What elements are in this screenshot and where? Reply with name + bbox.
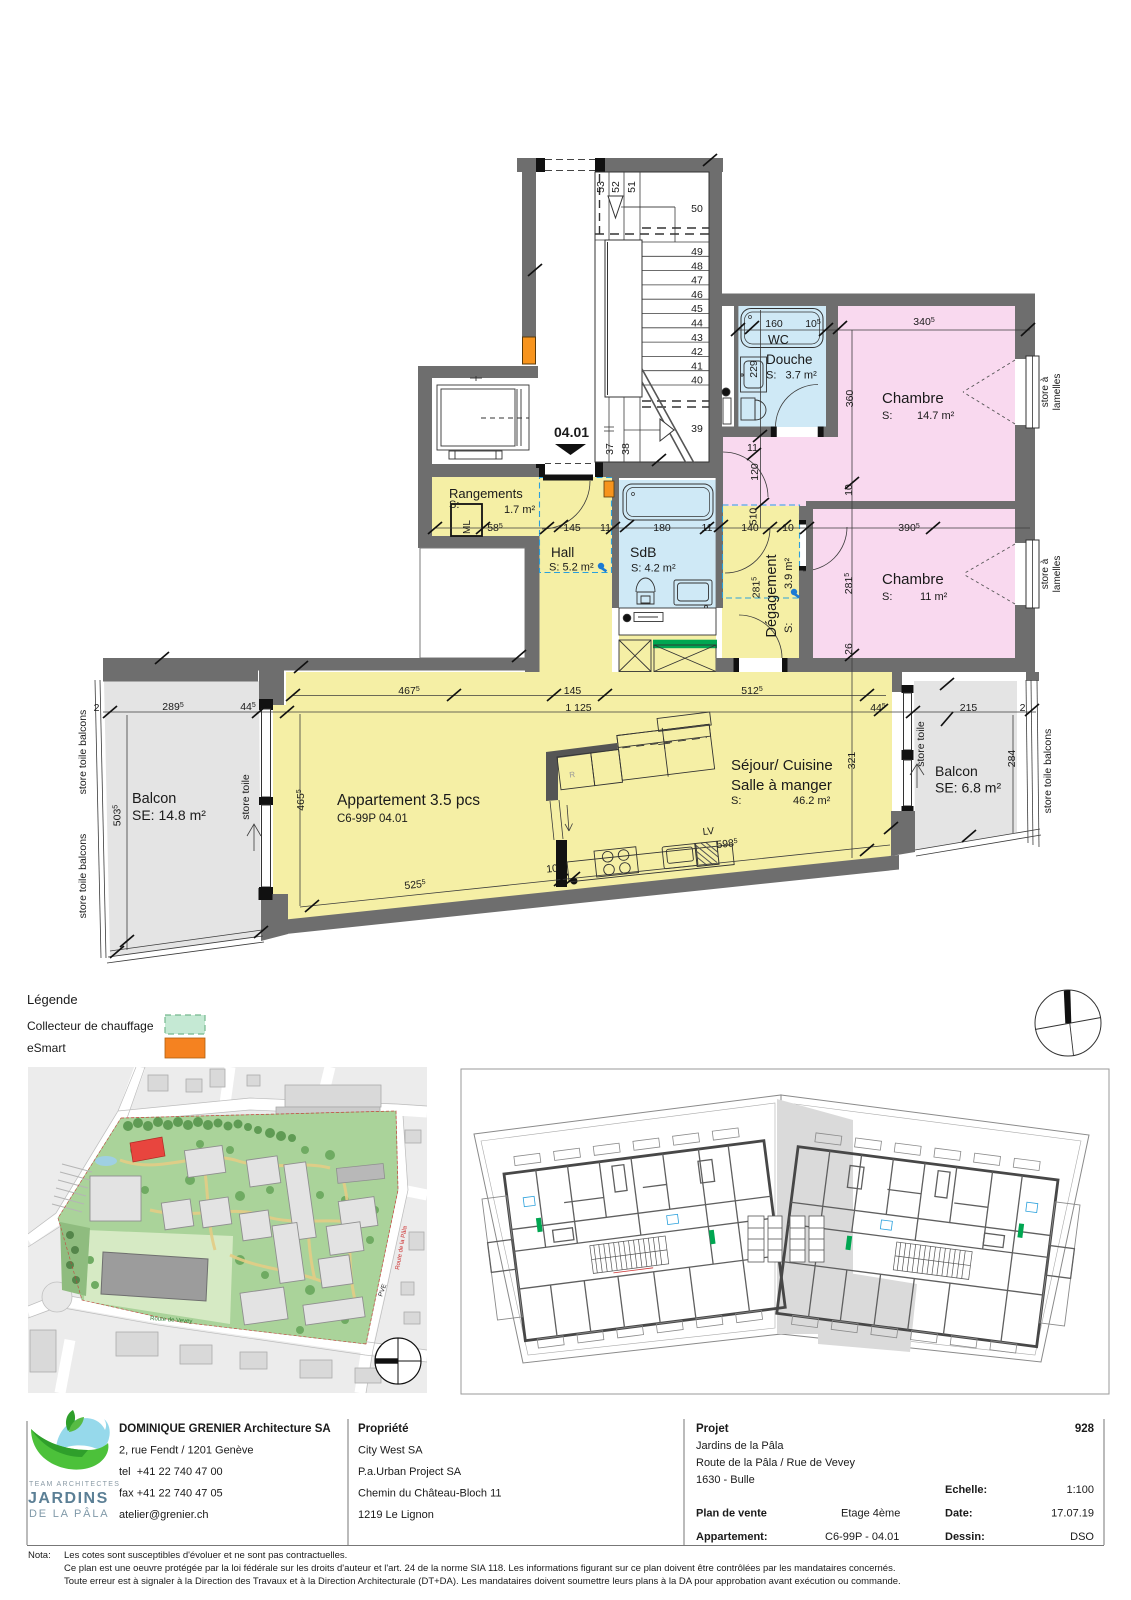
- svg-text:Propriété: Propriété: [358, 1423, 409, 1435]
- svg-text:145: 145: [563, 522, 581, 534]
- svg-text:Appartement:: Appartement:: [696, 1531, 768, 1543]
- svg-text:S:: S:: [882, 591, 892, 603]
- svg-text:S: 3.7 m²: S: 3.7 m²: [766, 370, 817, 382]
- svg-text:39: 39: [691, 423, 703, 435]
- svg-text:1219 Le Lignon: 1219 Le Lignon: [358, 1509, 434, 1521]
- svg-text:2, rue Fendt / 1201 Genève: 2, rue Fendt / 1201 Genève: [119, 1445, 254, 1457]
- svg-text:S: 4.2 m²: S: 4.2 m²: [631, 563, 676, 575]
- svg-text:04.01: 04.01: [554, 424, 589, 440]
- svg-text:44: 44: [691, 318, 703, 330]
- svg-text:SE: 14.8 m²: SE: 14.8 m²: [132, 807, 206, 823]
- svg-text:Séjour/ Cuisine: Séjour/ Cuisine: [731, 757, 833, 774]
- svg-text:40: 40: [691, 375, 703, 387]
- svg-text:City West SA: City West SA: [358, 1445, 423, 1457]
- svg-text:S: 5.2 m²: S: 5.2 m²: [549, 562, 594, 574]
- svg-text:11 m²: 11 m²: [920, 591, 948, 603]
- svg-text:Echelle:: Echelle:: [945, 1484, 987, 1496]
- svg-text:DOMINIQUE GRENIER Architecture: DOMINIQUE GRENIER Architecture SA: [119, 1423, 331, 1435]
- svg-text:Etage 4ème: Etage 4ème: [841, 1508, 900, 1520]
- svg-text:Appartement 3.5 pcs: Appartement 3.5 pcs: [337, 792, 480, 809]
- svg-text:store toile balcons: store toile balcons: [1042, 729, 1054, 814]
- svg-text:SE: 6.8 m²: SE: 6.8 m²: [935, 780, 1001, 796]
- svg-text:Date:: Date:: [945, 1508, 973, 1520]
- svg-text:store toile: store toile: [915, 721, 927, 767]
- svg-text:145: 145: [564, 685, 582, 697]
- svg-text:928: 928: [1075, 1423, 1095, 1435]
- svg-text:1 125: 1 125: [565, 702, 591, 714]
- svg-text:S:: S:: [783, 623, 795, 633]
- svg-text:38: 38: [620, 443, 632, 455]
- svg-text:Ce plan est une oeuvre protégé: Ce plan est une oeuvre protégée par la l…: [64, 1563, 895, 1574]
- svg-text:S:: S:: [449, 499, 459, 511]
- svg-text:Balcon: Balcon: [935, 763, 978, 779]
- svg-text:321: 321: [846, 752, 858, 770]
- svg-text:Dessin:: Dessin:: [945, 1531, 985, 1543]
- svg-text:14.7 m²: 14.7 m²: [917, 410, 955, 422]
- svg-text:store toile balcons: store toile balcons: [77, 710, 89, 795]
- svg-text:lamelles: lamelles: [1052, 374, 1063, 411]
- svg-text:Collecteur de chauffage: Collecteur de chauffage: [27, 1019, 154, 1033]
- svg-text:180: 180: [653, 522, 671, 534]
- svg-text:Chambre: Chambre: [882, 571, 944, 588]
- svg-text:140: 140: [741, 522, 759, 534]
- svg-text:45: 45: [691, 303, 703, 315]
- svg-text:Toute erreur est à signaler à: Toute erreur est à signaler à la Directi…: [64, 1576, 901, 1587]
- svg-text:120: 120: [749, 463, 761, 481]
- svg-text:Dégagement: Dégagement: [764, 554, 780, 637]
- svg-text:Légende: Légende: [27, 992, 78, 1007]
- svg-text:S:: S:: [882, 410, 892, 422]
- svg-text:store à: store à: [1040, 558, 1051, 589]
- svg-text:Nota:: Nota:: [28, 1550, 51, 1561]
- svg-text:41: 41: [691, 360, 703, 372]
- svg-text:TEAM ARCHITECTES: TEAM ARCHITECTES: [29, 1481, 120, 1488]
- svg-text:2: 2: [94, 702, 100, 714]
- svg-text:51: 51: [626, 181, 638, 193]
- svg-text:fax +41 22 740 47 05: fax +41 22 740 47 05: [119, 1488, 223, 1500]
- svg-text:store toile: store toile: [240, 774, 252, 820]
- svg-text:C6-99P 04.01: C6-99P 04.01: [337, 813, 408, 825]
- svg-text:2: 2: [1020, 702, 1026, 714]
- svg-text:Rangements: Rangements: [449, 486, 523, 501]
- svg-text:C6-99P - 04.01: C6-99P - 04.01: [825, 1531, 899, 1543]
- svg-text:Route de la Pâla / Rue de Veve: Route de la Pâla / Rue de Vevey: [696, 1457, 855, 1469]
- svg-text:store à: store à: [1040, 376, 1051, 407]
- svg-text:Jardins de la Pâla: Jardins de la Pâla: [696, 1440, 784, 1452]
- svg-text:1630 - Bulle: 1630 - Bulle: [696, 1474, 755, 1486]
- svg-text:10: 10: [546, 862, 559, 875]
- svg-text:3.9 m²: 3.9 m²: [783, 557, 795, 589]
- svg-text:42: 42: [691, 346, 703, 358]
- svg-text:160: 160: [765, 318, 783, 330]
- svg-text:43: 43: [691, 332, 703, 344]
- svg-text:52: 52: [610, 181, 622, 193]
- svg-text:store toile balcons: store toile balcons: [77, 834, 89, 919]
- svg-text:Balcon: Balcon: [132, 791, 176, 807]
- svg-text:Chambre: Chambre: [882, 390, 944, 407]
- svg-text:Hall: Hall: [551, 545, 574, 560]
- svg-text:50: 50: [691, 203, 703, 215]
- svg-text:284: 284: [1006, 750, 1018, 768]
- svg-text:360: 360: [844, 390, 856, 408]
- svg-text:atelier@grenier.ch: atelier@grenier.ch: [119, 1509, 208, 1521]
- svg-text:eSmart: eSmart: [27, 1041, 66, 1055]
- svg-text:JARDINS: JARDINS: [28, 1490, 109, 1507]
- svg-text:48: 48: [691, 260, 703, 272]
- svg-text:Salle à manger: Salle à manger: [731, 777, 832, 794]
- svg-text:11: 11: [600, 522, 611, 534]
- svg-text:DSO: DSO: [1070, 1531, 1094, 1543]
- svg-text:Douche: Douche: [766, 352, 813, 367]
- svg-text:49: 49: [691, 246, 703, 258]
- svg-text:47: 47: [691, 275, 703, 287]
- svg-text:1:100: 1:100: [1066, 1484, 1094, 1496]
- svg-text:17.07.19: 17.07.19: [1051, 1508, 1094, 1520]
- svg-text:229: 229: [748, 360, 760, 378]
- svg-text:DE LA PÂLA: DE LA PÂLA: [29, 1507, 109, 1520]
- svg-text:P.a.Urban Project SA: P.a.Urban Project SA: [358, 1466, 462, 1478]
- svg-text:53: 53: [595, 181, 607, 193]
- svg-text:Plan de vente: Plan de vente: [696, 1508, 767, 1520]
- svg-text:Projet: Projet: [696, 1423, 729, 1435]
- svg-text:Chemin du Château-Bloch 11: Chemin du Château-Bloch 11: [358, 1488, 502, 1500]
- svg-text:ML: ML: [462, 520, 473, 534]
- svg-text:SdB: SdB: [630, 544, 656, 560]
- svg-text:LV: LV: [702, 826, 715, 838]
- svg-text:1.7 m²: 1.7 m²: [504, 504, 536, 516]
- svg-text:46.2 m²: 46.2 m²: [793, 795, 831, 807]
- svg-text:10: 10: [782, 522, 794, 534]
- svg-text:lamelles: lamelles: [1052, 556, 1063, 593]
- svg-text:46: 46: [691, 289, 703, 301]
- svg-text:Les cotes sont susceptibles d': Les cotes sont susceptibles d'évoluer et…: [64, 1550, 347, 1561]
- svg-text:37: 37: [604, 443, 616, 455]
- svg-text:S:: S:: [731, 795, 741, 807]
- svg-text:215: 215: [960, 702, 978, 714]
- svg-text:tel +41 22 740 47 00: tel +41 22 740 47 00: [119, 1466, 223, 1478]
- svg-text:WC: WC: [768, 333, 789, 347]
